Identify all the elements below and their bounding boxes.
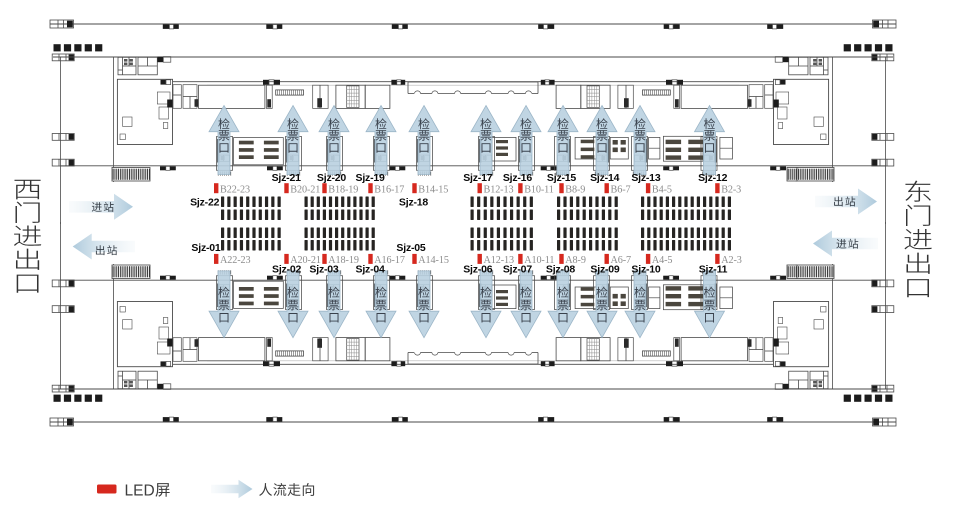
svg-text:Sjz-22: Sjz-22 (190, 196, 220, 208)
svg-text:Sjz-19: Sjz-19 (356, 172, 386, 184)
svg-text:Sjz-10: Sjz-10 (631, 263, 661, 275)
svg-text:Sjz-20: Sjz-20 (317, 172, 347, 184)
svg-text:B10-11: B10-11 (524, 184, 554, 195)
svg-text:B22-23: B22-23 (220, 184, 250, 195)
svg-text:Sjz-14: Sjz-14 (590, 172, 620, 184)
svg-text:Sjz-12: Sjz-12 (698, 172, 728, 184)
svg-text:B14-15: B14-15 (418, 184, 448, 195)
svg-text:B16-17: B16-17 (374, 184, 404, 195)
svg-text:Sjz-18: Sjz-18 (399, 196, 429, 208)
svg-text:B4-5: B4-5 (652, 184, 672, 195)
svg-text:Sjz-06: Sjz-06 (463, 263, 493, 275)
svg-text:Sjz-04: Sjz-04 (356, 263, 386, 275)
svg-text:Sjz-15: Sjz-15 (547, 172, 577, 184)
svg-text:Sjz-05: Sjz-05 (396, 242, 426, 254)
svg-text:Sjz-01: Sjz-01 (191, 242, 221, 254)
svg-text:B2-3: B2-3 (721, 184, 741, 195)
svg-text:B6-7: B6-7 (611, 184, 631, 195)
svg-text:LED: LED (125, 483, 155, 500)
svg-text:Sjz-09: Sjz-09 (590, 263, 620, 275)
svg-text:B12-13: B12-13 (484, 184, 514, 195)
svg-text:Sjz-11: Sjz-11 (699, 263, 728, 275)
svg-text:Sjz-21: Sjz-21 (272, 172, 302, 184)
svg-text:B20-21: B20-21 (290, 184, 320, 195)
svg-text:Sjz-17: Sjz-17 (463, 172, 493, 184)
svg-text:A14-15: A14-15 (418, 255, 449, 266)
svg-text:A22-23: A22-23 (220, 255, 251, 266)
svg-text:Sjz-02: Sjz-02 (272, 263, 302, 275)
svg-text:Sjz-13: Sjz-13 (631, 172, 661, 184)
svg-text:Sjz-16: Sjz-16 (503, 172, 533, 184)
svg-text:Sjz-03: Sjz-03 (309, 263, 339, 275)
svg-text:Sjz-08: Sjz-08 (546, 263, 576, 275)
svg-text:B8-9: B8-9 (565, 184, 585, 195)
svg-text:Sjz-07: Sjz-07 (503, 263, 533, 275)
svg-text:B18-19: B18-19 (328, 184, 358, 195)
